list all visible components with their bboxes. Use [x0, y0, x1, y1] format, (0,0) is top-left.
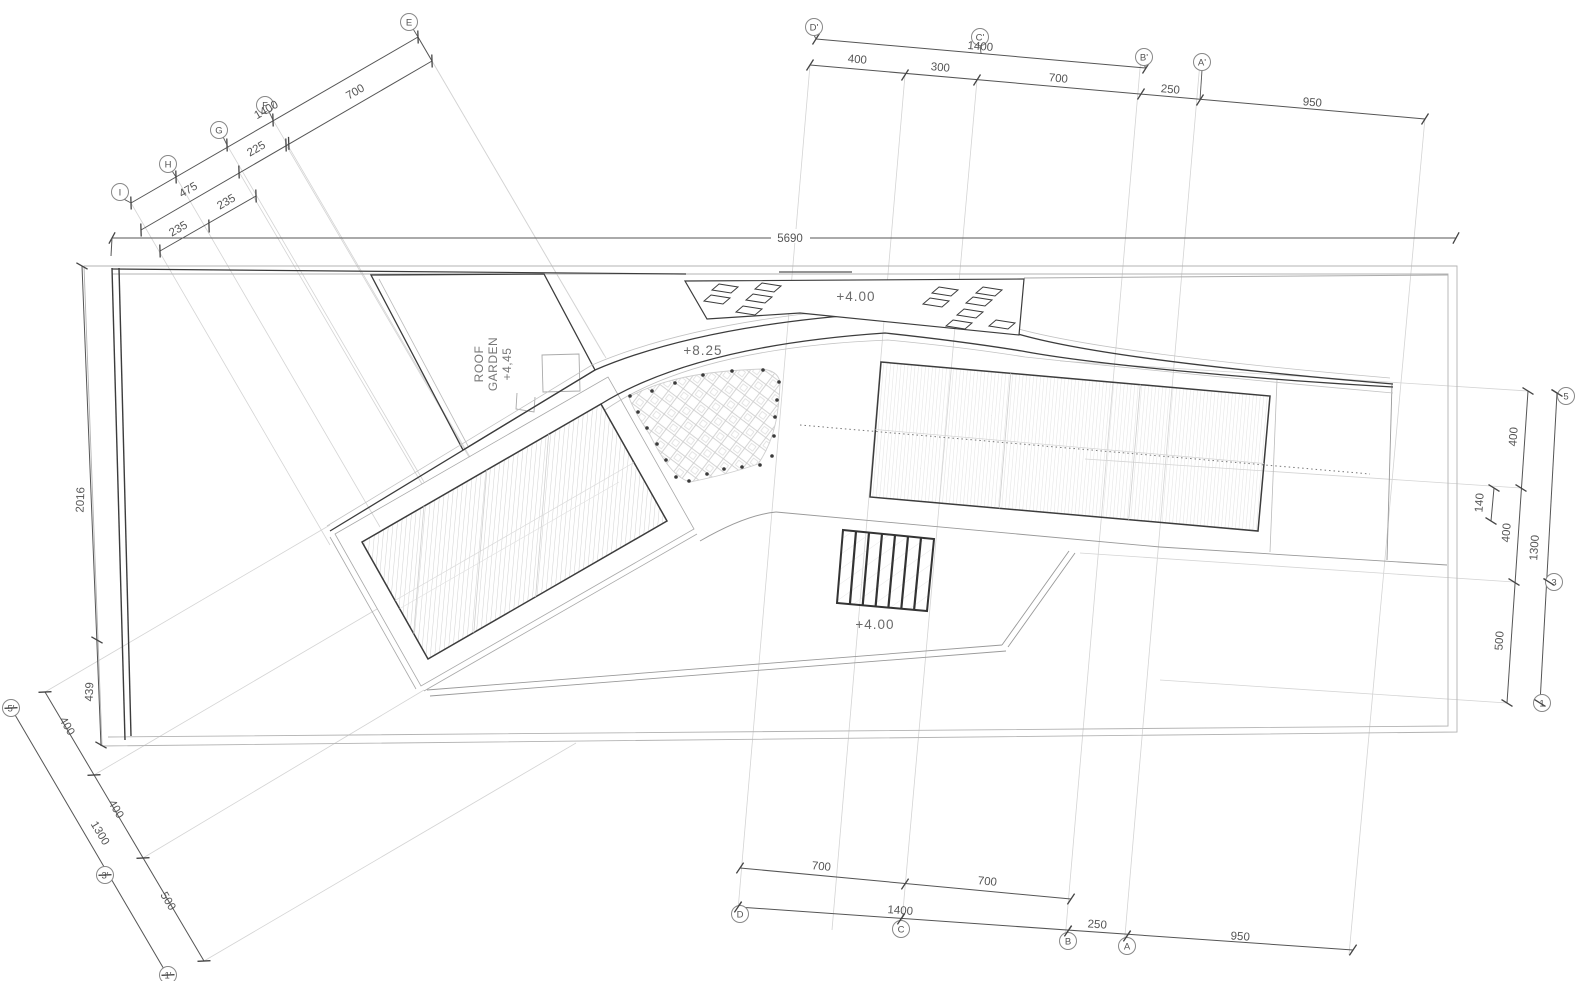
svg-text:D': D': [810, 22, 819, 33]
svg-text:439: 439: [84, 682, 97, 702]
svg-text:5: 5: [1563, 391, 1568, 402]
svg-text:400: 400: [847, 53, 867, 67]
svg-text:+4.00: +4.00: [836, 289, 875, 304]
svg-text:ROOF: ROOF: [472, 346, 486, 383]
svg-text:E: E: [406, 17, 412, 28]
svg-text:B': B': [1140, 52, 1148, 63]
svg-text:700: 700: [1048, 72, 1068, 86]
svg-text:3: 3: [1551, 577, 1556, 588]
svg-text:A': A': [1198, 57, 1206, 68]
svg-text:GARDEN: GARDEN: [486, 337, 500, 391]
svg-text:B: B: [1065, 936, 1071, 947]
svg-text:400: 400: [1507, 427, 1520, 447]
svg-text:H: H: [165, 159, 172, 170]
svg-text:140: 140: [1473, 493, 1486, 513]
svg-text:G: G: [215, 125, 222, 136]
svg-text:5': 5': [7, 703, 14, 714]
svg-text:700: 700: [811, 860, 831, 874]
svg-text:950: 950: [1302, 96, 1322, 110]
svg-text:3': 3': [101, 870, 108, 881]
svg-text:1400: 1400: [967, 40, 994, 54]
svg-text:+4.00: +4.00: [855, 617, 894, 632]
svg-text:250: 250: [1160, 83, 1180, 97]
svg-text:2016: 2016: [75, 487, 88, 513]
svg-text:A: A: [1124, 941, 1131, 952]
svg-text:5690: 5690: [777, 233, 803, 245]
svg-text:I: I: [119, 187, 122, 198]
svg-text:250: 250: [1087, 918, 1107, 931]
svg-text:400: 400: [1500, 523, 1513, 543]
svg-text:700: 700: [977, 875, 997, 889]
svg-text:1400: 1400: [887, 904, 913, 918]
svg-text:+4,45: +4,45: [500, 348, 514, 381]
svg-text:300: 300: [930, 61, 950, 75]
svg-text:C: C: [898, 924, 905, 935]
svg-text:+8.25: +8.25: [683, 343, 722, 358]
svg-text:500: 500: [1493, 631, 1506, 651]
svg-text:950: 950: [1230, 930, 1250, 943]
svg-text:D: D: [737, 909, 744, 920]
svg-text:1300: 1300: [1528, 535, 1542, 561]
